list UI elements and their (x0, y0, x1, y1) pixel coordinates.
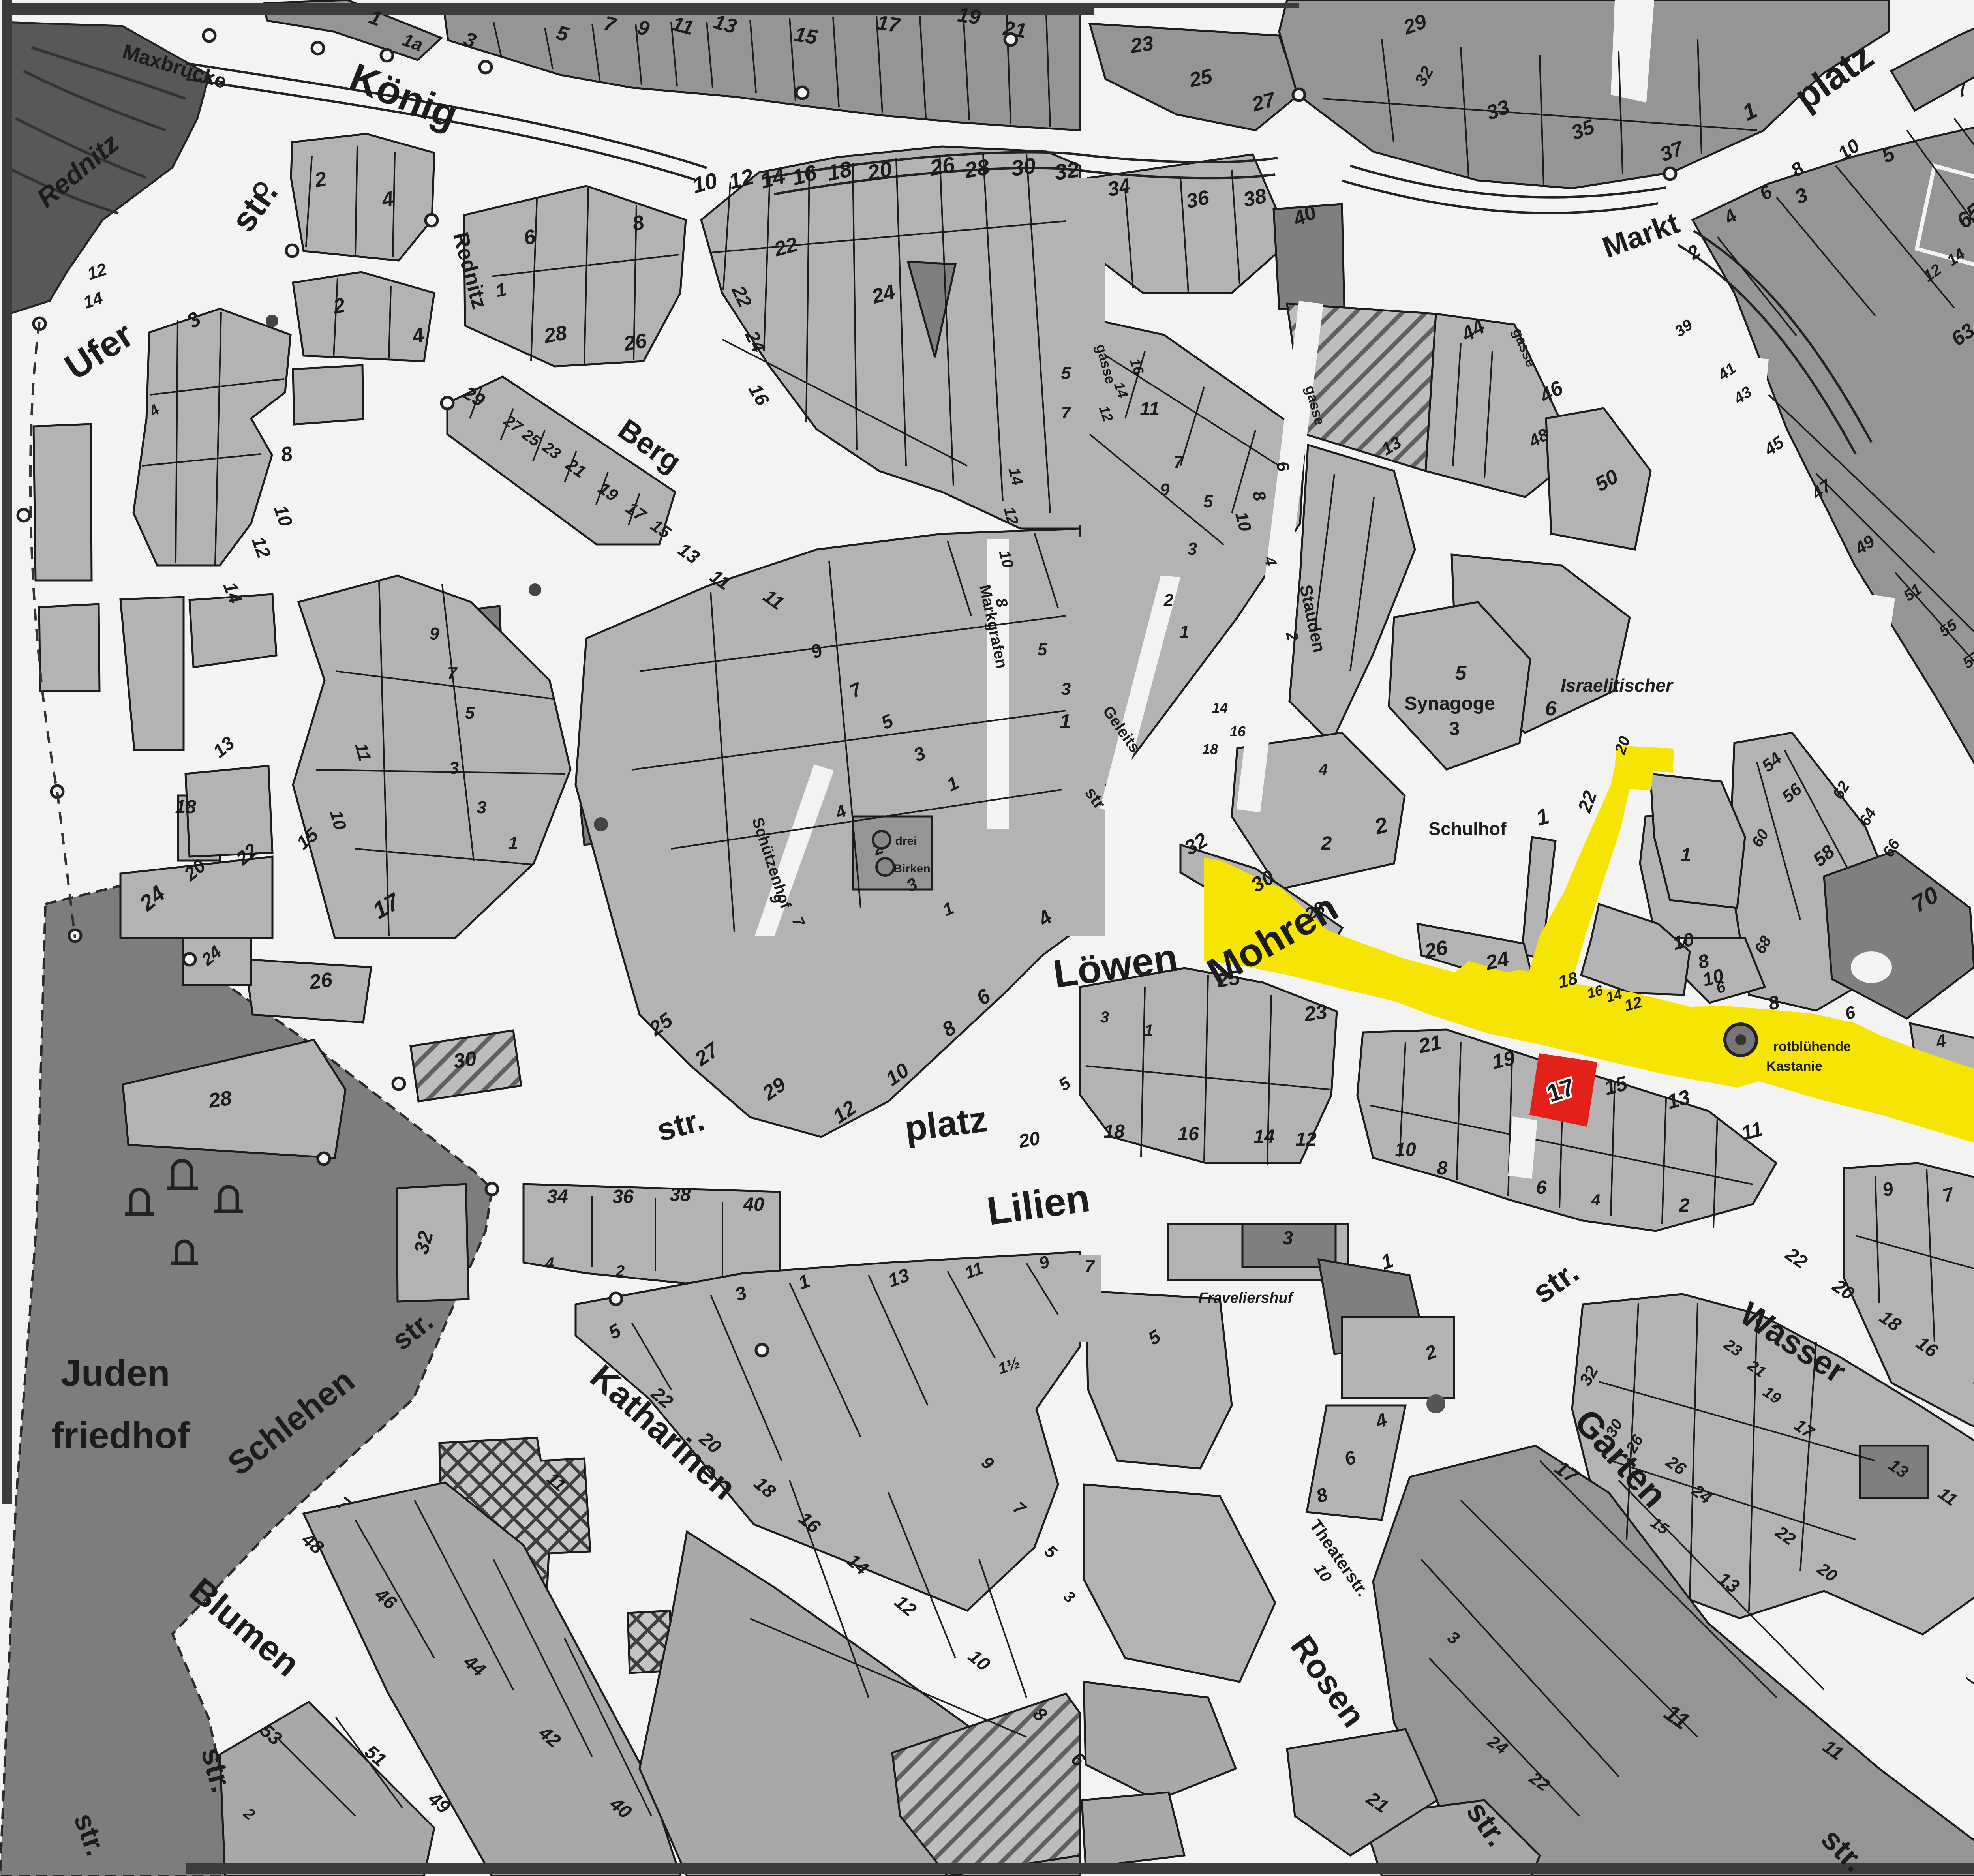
svg-text:18: 18 (1103, 1121, 1125, 1142)
svg-text:Kastanie: Kastanie (1766, 1059, 1822, 1074)
svg-text:8: 8 (1437, 1158, 1448, 1179)
svg-text:Juden: Juden (61, 1352, 170, 1394)
svg-text:38: 38 (670, 1184, 691, 1205)
svg-text:26: 26 (622, 329, 649, 356)
svg-text:28: 28 (962, 154, 991, 183)
svg-text:14: 14 (1212, 700, 1228, 716)
svg-text:2: 2 (1163, 591, 1174, 610)
svg-text:4: 4 (1591, 1191, 1600, 1209)
svg-text:3: 3 (1283, 1228, 1293, 1249)
svg-text:12: 12 (1295, 1129, 1317, 1150)
svg-text:11: 11 (1140, 399, 1160, 420)
svg-text:21: 21 (1416, 1031, 1444, 1058)
svg-text:1: 1 (1180, 622, 1189, 642)
svg-text:18: 18 (1202, 741, 1218, 757)
svg-text:7: 7 (1085, 1257, 1096, 1276)
svg-text:40: 40 (743, 1194, 764, 1215)
svg-text:26: 26 (927, 152, 957, 180)
svg-text:5: 5 (465, 703, 475, 722)
svg-text:rotblühende: rotblühende (1773, 1039, 1851, 1054)
svg-text:24: 24 (1483, 947, 1511, 975)
svg-text:34: 34 (547, 1186, 568, 1207)
svg-text:28: 28 (207, 1086, 233, 1112)
svg-text:7: 7 (1061, 403, 1072, 422)
svg-text:5: 5 (1038, 640, 1047, 659)
svg-text:3: 3 (449, 758, 459, 778)
svg-text:20: 20 (865, 156, 894, 186)
svg-text:3: 3 (1061, 679, 1071, 699)
svg-text:5: 5 (1061, 364, 1071, 383)
svg-text:19: 19 (1490, 1047, 1517, 1074)
svg-text:20: 20 (1017, 1128, 1041, 1152)
svg-text:3: 3 (1449, 719, 1460, 739)
svg-text:16: 16 (1178, 1124, 1199, 1144)
svg-text:4: 4 (1319, 761, 1328, 778)
svg-text:30: 30 (452, 1047, 478, 1073)
svg-text:23: 23 (1302, 1000, 1329, 1026)
svg-text:6: 6 (1536, 1177, 1547, 1198)
svg-text:1: 1 (1681, 845, 1691, 866)
svg-text:Synagoge: Synagoge (1404, 693, 1495, 714)
svg-text:1: 1 (1060, 710, 1071, 733)
svg-text:19: 19 (956, 3, 982, 29)
svg-text:9: 9 (430, 624, 439, 643)
svg-text:30: 30 (1010, 153, 1037, 181)
svg-text:1: 1 (509, 833, 518, 853)
svg-text:15: 15 (792, 23, 819, 49)
svg-text:9: 9 (1160, 480, 1170, 499)
svg-text:16: 16 (1230, 723, 1246, 739)
svg-text:23: 23 (1129, 32, 1155, 58)
svg-text:28: 28 (542, 321, 569, 348)
svg-text:Birken: Birken (893, 862, 930, 875)
svg-text:17: 17 (876, 11, 902, 37)
svg-text:26: 26 (308, 968, 334, 994)
svg-text:2: 2 (615, 1263, 625, 1280)
svg-text:5: 5 (1455, 662, 1467, 685)
svg-text:Israelitischer: Israelitischer (1561, 675, 1674, 696)
svg-text:3: 3 (1188, 539, 1197, 559)
svg-text:25: 25 (1215, 966, 1242, 992)
svg-text:38: 38 (1241, 184, 1268, 212)
svg-text:2: 2 (1321, 833, 1332, 854)
svg-text:14: 14 (1253, 1126, 1274, 1147)
svg-text:Fraveliershuf: Fraveliershuf (1199, 1290, 1294, 1306)
svg-text:10: 10 (1395, 1139, 1416, 1160)
svg-text:18: 18 (175, 797, 196, 818)
svg-text:4: 4 (545, 1255, 554, 1272)
svg-text:7: 7 (1174, 452, 1184, 472)
svg-text:drei: drei (895, 835, 917, 848)
svg-text:3: 3 (477, 798, 486, 817)
svg-text:6: 6 (1545, 697, 1557, 720)
svg-text:1: 1 (1145, 1022, 1153, 1039)
svg-text:2: 2 (1679, 1195, 1690, 1216)
svg-text:36: 36 (612, 1186, 634, 1207)
svg-text:7: 7 (447, 664, 458, 683)
svg-text:Schulhof: Schulhof (1429, 818, 1507, 839)
svg-text:3: 3 (1100, 1009, 1109, 1026)
svg-text:32: 32 (1053, 157, 1081, 185)
svg-text:5: 5 (1203, 492, 1213, 511)
svg-text:34: 34 (1105, 174, 1133, 201)
svg-text:friedhof: friedhof (51, 1415, 190, 1456)
